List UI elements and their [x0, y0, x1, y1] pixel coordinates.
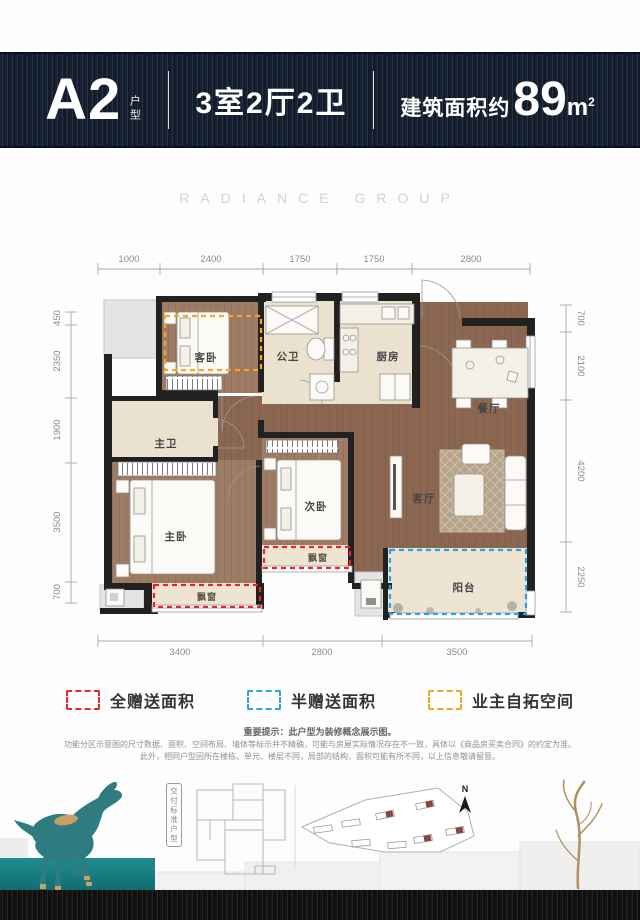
label-living: 客厅: [412, 492, 436, 505]
sink: [398, 307, 409, 319]
sink: [382, 307, 395, 319]
label-guest-bedroom: 客卧: [194, 351, 218, 364]
label-second-bedroom: 次卧: [305, 500, 328, 513]
nightstand: [264, 458, 276, 470]
svg-text:2800: 2800: [311, 647, 332, 658]
legend: 全赠送面积 半赠送面积 业主自拓空间: [0, 688, 640, 712]
nightstand: [264, 528, 276, 540]
header-divider: [373, 71, 374, 129]
room-layout: 3室2厅2卫: [195, 78, 347, 122]
toilet: [307, 338, 325, 360]
half-gift-label: 半赠送面积: [291, 688, 376, 712]
watermark-text: RADIANCE GROUP: [0, 190, 640, 206]
label-bay-second: 飘窗: [308, 552, 328, 563]
sofa: [505, 456, 526, 530]
nightstand: [116, 564, 129, 577]
footer-artwork: N: [0, 760, 640, 890]
second-wardrobe: [266, 440, 338, 453]
ac-platform: [104, 300, 158, 358]
svg-text:700: 700: [575, 310, 586, 326]
label-dining: 餐厅: [477, 402, 501, 415]
area-group: 建筑面积约 89 m2: [400, 76, 594, 124]
label-kitchen: 厨房: [377, 350, 400, 363]
hall-floor: [218, 396, 262, 460]
area-prefix: 建筑面积约: [400, 92, 510, 122]
site-plan: [302, 788, 474, 852]
svg-text:2250: 2250: [575, 566, 586, 587]
unit-code: A2: [45, 71, 121, 129]
svg-text:3500: 3500: [446, 647, 467, 658]
owner-expand-swatch: [428, 690, 462, 710]
svg-text:2350: 2350: [52, 350, 63, 371]
label-bay-master: 飘窗: [197, 591, 217, 602]
svg-text:450: 450: [52, 310, 63, 326]
delivery-standard-label-box: 交付标准户型: [166, 783, 182, 847]
label-public-bath: 公卫: [277, 351, 300, 363]
svg-text:1900: 1900: [52, 419, 63, 440]
master-bath-floor: [112, 398, 218, 460]
label-master-bath: 主卫: [155, 437, 178, 450]
legend-item-owner-expand: 业主自拓空间: [428, 688, 574, 712]
disclaimer-line-2: 功能分区示意图的尺寸数据、面积、空间布局、墙体等标示并不精确，可能与房屋实际情况…: [40, 739, 600, 751]
master-wardrobe: [118, 462, 216, 476]
label-master-bedroom: 主卧: [165, 530, 188, 543]
tv: [393, 464, 396, 510]
disclaimer-line-1: 重要提示：此户型为装修概念展示图。: [40, 726, 600, 739]
compass-icon: N: [459, 784, 471, 813]
svg-text:700: 700: [52, 584, 63, 600]
header-band: A2 户型 3室2厅2卫 建筑面积约 89 m2: [0, 52, 640, 148]
compass-n-label: N: [462, 784, 469, 794]
delivery-standard-label: 交付标准户型: [169, 787, 180, 844]
guest-wardrobe: [166, 376, 222, 390]
corridor-floor: [262, 404, 352, 432]
disclaimer: 重要提示：此户型为装修概念展示图。 功能分区示意图的尺寸数据、面积、空间布局、墙…: [40, 726, 600, 763]
floorplan-drawing: 客卧 公卫 厨房 餐厅 主卫 主卧 次卧 客厅 阳台 飘窗 飘窗: [0, 250, 640, 660]
svg-text:2400: 2400: [200, 254, 221, 265]
legend-item-half-gift: 半赠送面积: [247, 688, 376, 712]
svg-text:3500: 3500: [52, 511, 63, 532]
horse-tail: [14, 820, 38, 840]
svg-text:1750: 1750: [363, 254, 384, 265]
area-value: 89: [513, 76, 566, 124]
coffee-table: [454, 474, 484, 516]
mini-floorplan: [197, 784, 285, 874]
floorplan-poster: A2 户型 3室2厅2卫 建筑面积约 89 m2 RADIANCE GROUP: [0, 0, 640, 920]
unit-code-group: A2 户型: [45, 71, 142, 129]
header-divider: [168, 71, 169, 129]
svg-text:4200: 4200: [575, 460, 586, 481]
svg-text:3400: 3400: [169, 647, 190, 658]
area-unit: m2: [567, 94, 595, 122]
svg-text:2100: 2100: [575, 355, 586, 376]
svg-text:1000: 1000: [118, 254, 139, 265]
nightstand: [116, 480, 129, 493]
legend-item-full-gift: 全赠送面积: [66, 688, 195, 712]
base-strip: [0, 890, 640, 920]
half-gift-swatch: [247, 690, 281, 710]
unit-suffix: 户型: [126, 95, 142, 123]
svg-text:1750: 1750: [289, 254, 310, 265]
svg-text:2800: 2800: [460, 254, 481, 265]
armchair: [462, 444, 490, 464]
label-balcony: 阳台: [453, 581, 476, 594]
full-gift-swatch: [66, 690, 100, 710]
bath-vanity: [310, 374, 334, 400]
full-gift-label: 全赠送面积: [110, 688, 195, 712]
dining-living-floor: [416, 302, 528, 583]
owner-expand-label: 业主自拓空间: [472, 688, 574, 712]
